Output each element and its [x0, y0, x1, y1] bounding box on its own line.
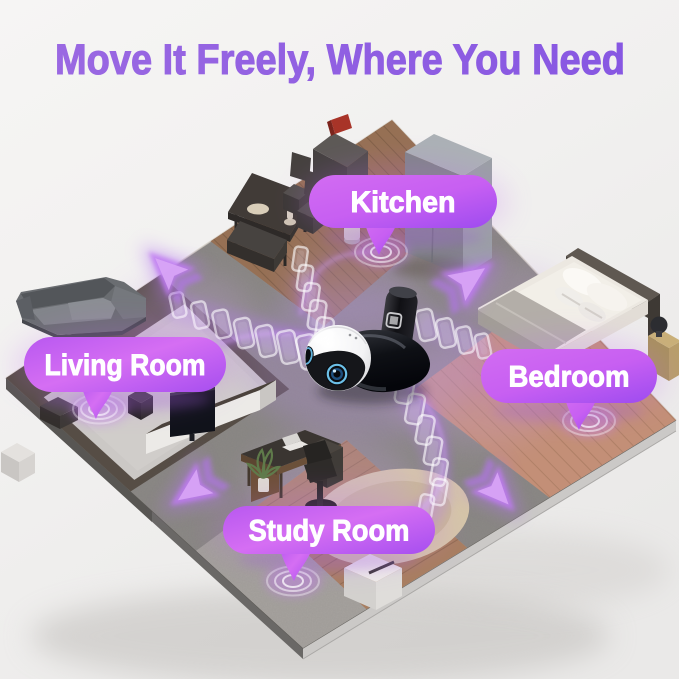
svg-text:Study Room: Study Room	[249, 515, 410, 548]
svg-text:Kitchen: Kitchen	[351, 186, 456, 219]
svg-text:Living Room: Living Room	[45, 349, 206, 382]
svg-text:Bedroom: Bedroom	[509, 361, 630, 394]
svg-text:Move It Freely, Where You Need: Move It Freely, Where You Need	[55, 36, 625, 84]
